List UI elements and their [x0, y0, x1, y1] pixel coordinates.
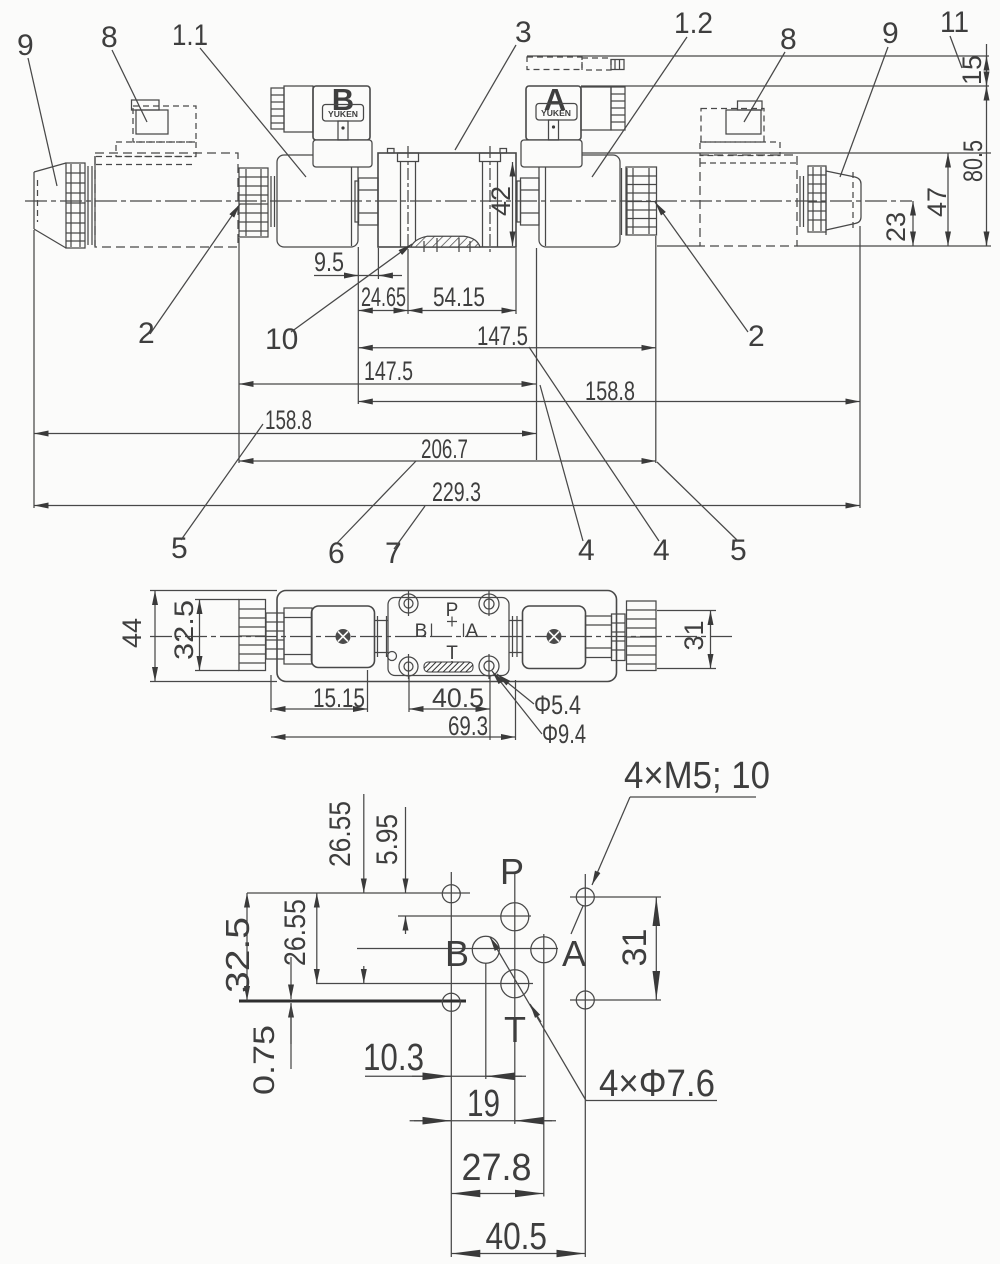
svg-text:80.5: 80.5: [958, 140, 988, 182]
svg-text:11: 11: [940, 6, 969, 39]
svg-text:5: 5: [171, 532, 188, 565]
svg-text:40.5: 40.5: [486, 1216, 548, 1258]
svg-text:31: 31: [679, 620, 709, 650]
svg-text:47: 47: [922, 187, 952, 217]
svg-text:10: 10: [265, 323, 298, 356]
svg-text:147.5: 147.5: [477, 321, 528, 351]
svg-text:8: 8: [101, 21, 118, 54]
svg-text:158.8: 158.8: [265, 405, 312, 435]
svg-text:1.1: 1.1: [172, 19, 208, 52]
svg-text:54.15: 54.15: [433, 282, 485, 312]
svg-text:40.5: 40.5: [432, 683, 484, 713]
svg-text:4: 4: [653, 534, 670, 567]
svg-text:2: 2: [748, 320, 765, 353]
svg-text:5: 5: [730, 534, 747, 567]
svg-text:15: 15: [957, 55, 987, 85]
svg-text:T: T: [504, 1009, 526, 1050]
svg-text:5.95: 5.95: [371, 814, 404, 865]
svg-text:6: 6: [328, 537, 345, 570]
svg-text:19: 19: [467, 1083, 500, 1125]
svg-text:27.8: 27.8: [462, 1147, 532, 1189]
svg-text:0.75: 0.75: [248, 1025, 281, 1095]
svg-text:3: 3: [515, 16, 532, 49]
svg-text:YUKEN: YUKEN: [328, 110, 358, 119]
svg-text:4×M5; 10: 4×M5; 10: [624, 755, 770, 797]
svg-text:Φ9.4: Φ9.4: [542, 719, 586, 749]
svg-text:A: A: [466, 621, 479, 642]
svg-text:9.5: 9.5: [314, 247, 344, 277]
svg-text:147.5: 147.5: [364, 356, 413, 386]
svg-text:15.15: 15.15: [313, 683, 365, 713]
svg-text:69.3: 69.3: [448, 711, 488, 741]
svg-text:P: P: [500, 851, 524, 892]
svg-text:1.2: 1.2: [674, 7, 713, 40]
svg-text:T: T: [446, 643, 458, 664]
svg-text:26.55: 26.55: [279, 899, 312, 966]
svg-text:44: 44: [117, 618, 147, 648]
svg-text:206.7: 206.7: [421, 434, 468, 464]
svg-text:9: 9: [882, 17, 899, 50]
svg-text:42: 42: [486, 186, 516, 216]
svg-text:31: 31: [616, 929, 654, 967]
svg-text:26.55: 26.55: [324, 801, 357, 867]
svg-text:B: B: [445, 933, 469, 974]
svg-text:23: 23: [881, 212, 911, 242]
svg-text:YUKEN: YUKEN: [541, 109, 571, 118]
svg-text:32.5: 32.5: [169, 600, 199, 660]
svg-text:B: B: [415, 621, 428, 642]
svg-text:9: 9: [17, 29, 34, 62]
svg-text:Φ5.4: Φ5.4: [534, 690, 581, 720]
svg-text:229.3: 229.3: [432, 477, 481, 507]
svg-text:4×Φ7.6: 4×Φ7.6: [599, 1063, 715, 1105]
svg-text:A: A: [562, 933, 586, 974]
svg-text:10.3: 10.3: [363, 1037, 424, 1079]
svg-text:24.65: 24.65: [361, 282, 406, 312]
svg-text:2: 2: [138, 317, 155, 350]
svg-text:32.5: 32.5: [219, 917, 256, 993]
svg-text:158.8: 158.8: [585, 376, 635, 406]
svg-text:4: 4: [578, 534, 595, 567]
svg-text:8: 8: [780, 23, 797, 56]
